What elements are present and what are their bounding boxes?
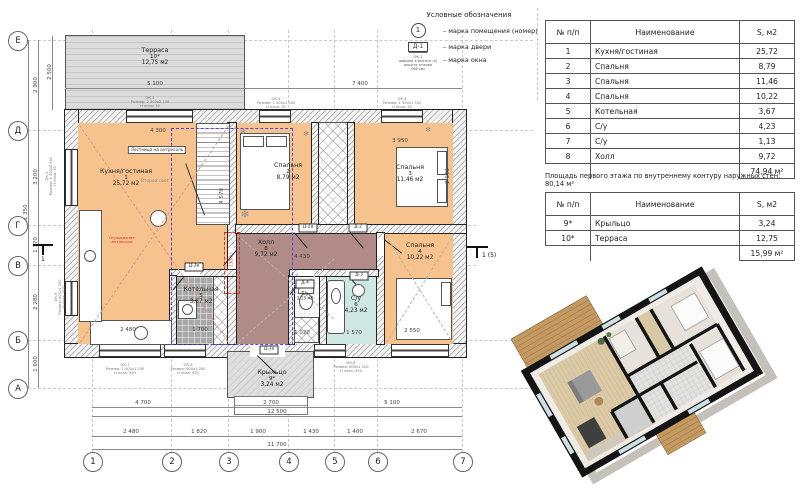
pillow: [441, 282, 451, 306]
window-note: ОК-8 Размер: 800х1 200 Н низа: 920: [170, 363, 205, 375]
door-mark: Д-3а: [185, 263, 204, 272]
dim-text: 2 670: [411, 429, 427, 435]
door-opening: [377, 238, 384, 256]
axis-letter: Б: [8, 331, 28, 351]
dim-text: 1 020: [294, 330, 310, 336]
stair-note: Лестница на антресоль: [128, 146, 186, 154]
window-note: ОК-7 Размер: 1 400х1 200 Н низа: 920: [106, 363, 145, 375]
dim-text: 2 900: [445, 168, 451, 184]
window-note: ОК-4 Размер: 1 500х1 500 Н низа: 20: [257, 97, 296, 109]
dim-text: 12 500: [267, 409, 286, 415]
axonometric-3d-view: [490, 246, 800, 498]
dim-text: 1 430: [303, 429, 319, 435]
dim-text: 2 500: [47, 64, 53, 80]
dim-text: 11 700: [267, 442, 286, 448]
room-label-bedroom3: Спальня311,46 м2: [396, 164, 424, 184]
dim-line: [92, 416, 462, 417]
door-mark: Д-4: [296, 280, 315, 289]
dim-text: 1 820: [191, 429, 207, 435]
dim-line: [92, 407, 462, 408]
section-label: 1: [41, 256, 45, 263]
dim-text: 7 400: [352, 81, 368, 87]
window: [382, 111, 422, 122]
window-note: ОК-6 Размер: 800х1 200 Н низа: 920: [54, 279, 66, 314]
table-header-row: № п/п Наименование S, м2: [546, 193, 795, 216]
window-note: ОК-8 Размер: 800х1 200 Н низа: 920: [333, 361, 368, 373]
room-area-table: № п/п Наименование S, м2 1Кухня/гостиная…: [545, 20, 795, 179]
mezzanine-rail-note: Ограждение антресоли: [109, 236, 134, 244]
axis-number: 4: [279, 452, 299, 472]
room-label-porch: Крыльцо9*3,24 м2: [257, 369, 286, 389]
room-label-boiler: Котельная53,67 м2: [183, 286, 218, 306]
axis-number: 6: [368, 452, 388, 472]
room-label-hall: Холл89,72 м2: [255, 239, 278, 259]
dim-text: 2 700: [263, 400, 279, 406]
window-note: ОК-1 Размер: 1 300х2 100 Н низа: 30: [45, 157, 57, 196]
door-mark-icon: Д-1: [408, 42, 428, 52]
table-header-row: № п/п Наименование S, м2: [546, 21, 795, 44]
room-label-bedroom2: Спальня28,79 м2: [274, 162, 302, 182]
axis-number: 2: [162, 452, 182, 472]
table-row: 3Спальня11,46: [546, 74, 795, 89]
bath-drain: [331, 288, 341, 304]
dim-line: [65, 88, 462, 89]
window: [66, 150, 77, 205]
table-row: 6С/у4,23: [546, 119, 795, 134]
legend: Условные обозначения 1 – марка помещения…: [393, 11, 545, 76]
dim-line: [92, 449, 462, 450]
window: [127, 111, 192, 122]
table-row: 9*Крыльцо3,24: [546, 216, 795, 231]
wardrobe: [318, 123, 348, 225]
dim-text: 2 480: [123, 429, 139, 435]
legend-title: Условные обозначения: [393, 11, 545, 19]
dim-text: 1 400: [347, 429, 363, 435]
room-label-su6: С/у64,23 м2: [345, 295, 368, 315]
legend-label: – марка двери: [443, 43, 491, 51]
dim-text: 5 100: [384, 400, 400, 406]
second-light-note: Второй свет: [141, 179, 169, 184]
axis-number: 7: [453, 452, 473, 472]
window: [315, 345, 345, 356]
area-note: Площадь первого этажа по внутреннему кон…: [545, 172, 797, 188]
dim-text: 1 570: [346, 330, 362, 336]
plant-icon: ✻: [425, 126, 431, 134]
table-row: 5Котельная3,67: [546, 104, 795, 119]
section-mark: [476, 246, 478, 258]
legend-label: – марка окна: [443, 56, 487, 64]
dim-text: 2 280: [33, 294, 39, 310]
room-label-bedroom4: Спальня410,22 м2: [406, 242, 434, 262]
table-row: 10*Терраса12,75: [546, 231, 795, 246]
table-row: 8Холл9,72: [546, 149, 795, 164]
room-mark-icon: 1: [411, 23, 426, 38]
dim-text: 4 300: [150, 128, 166, 134]
legend-label: – марка помещения (номер): [443, 27, 538, 35]
axis-letter: Д: [8, 121, 28, 141]
room-label-su7: С/у1,13 м2: [297, 291, 313, 300]
door-mark: Д-3: [350, 272, 369, 281]
dim-text: 4 570: [219, 188, 225, 204]
door-mark: Д-1а: [260, 346, 279, 355]
kitchen-cabinets: [79, 210, 102, 322]
table-row: 2Спальня8,79: [546, 59, 795, 74]
height-note: 1 130(h): [229, 253, 234, 271]
dim-text: 4 430: [294, 254, 310, 260]
axis-number: 1: [83, 452, 103, 472]
dim-text: 1 600: [33, 356, 39, 372]
legend-window-mark: ОК-1 ширина х высота (h) высота отлива 0…: [393, 56, 545, 72]
axis-number: 3: [219, 452, 239, 472]
window-note: ОК-4 Размер: 1 500х1 500 Н низа: 20: [383, 97, 422, 109]
table-row: 1Кухня/гостиная25,72: [546, 44, 795, 59]
dim-text: 3 950: [392, 138, 408, 144]
table-row: 7С/у1,13: [546, 134, 795, 149]
wall: [312, 123, 318, 225]
section-mark: [42, 244, 44, 255]
room-label-kitchen: Кухня/гостиная125,72 м2: [100, 168, 152, 188]
dim-text: 1 700: [192, 327, 208, 333]
room-label-terrace: Терраса10*12,75 м2: [142, 47, 169, 67]
dim-text: 2 480: [120, 327, 136, 333]
dim-text: 4 700: [135, 400, 151, 406]
dim-line: [92, 436, 462, 437]
axis-letter: В: [8, 256, 28, 276]
dim-text: 5 100: [147, 81, 163, 87]
plant-icon: ✻: [303, 130, 309, 138]
window: [66, 282, 77, 315]
axis-letter: А: [8, 379, 28, 399]
drawing-sheet: ✻ ✻ ✻ ✻ 1 130(h) Терраса10*12,75 м2 Кухн…: [0, 0, 800, 498]
wall: [348, 123, 354, 225]
dim-text: 1 900: [250, 429, 266, 435]
window-mark-icon: ОК-1 ширина х высота (h) высота отлива 0…: [399, 56, 438, 72]
table-row: 4Спальня10,22: [546, 89, 795, 104]
window: [260, 111, 290, 122]
window-note: ОК-3 Размер: 2 300х2 100 Н низа: 30: [131, 96, 170, 108]
axis-letter: Е: [8, 31, 28, 51]
window: [165, 345, 205, 356]
axis-letter: Г: [8, 216, 28, 236]
wall: [65, 110, 78, 357]
dim-text: 2 900: [33, 77, 39, 93]
hob: [84, 250, 96, 262]
dim-text: 2 550: [404, 328, 420, 334]
axis-number: 5: [325, 452, 345, 472]
dim-text: 3 200: [33, 169, 39, 185]
door-opening: [298, 270, 314, 276]
door-mark: Д-2а: [299, 224, 318, 233]
legend-door-mark: Д-1 – марка двери: [393, 42, 545, 52]
window: [392, 345, 448, 356]
window: [100, 345, 160, 356]
door-mark: Д-2: [349, 224, 368, 233]
legend-room-mark: 1 – марка помещения (номер): [393, 23, 545, 38]
